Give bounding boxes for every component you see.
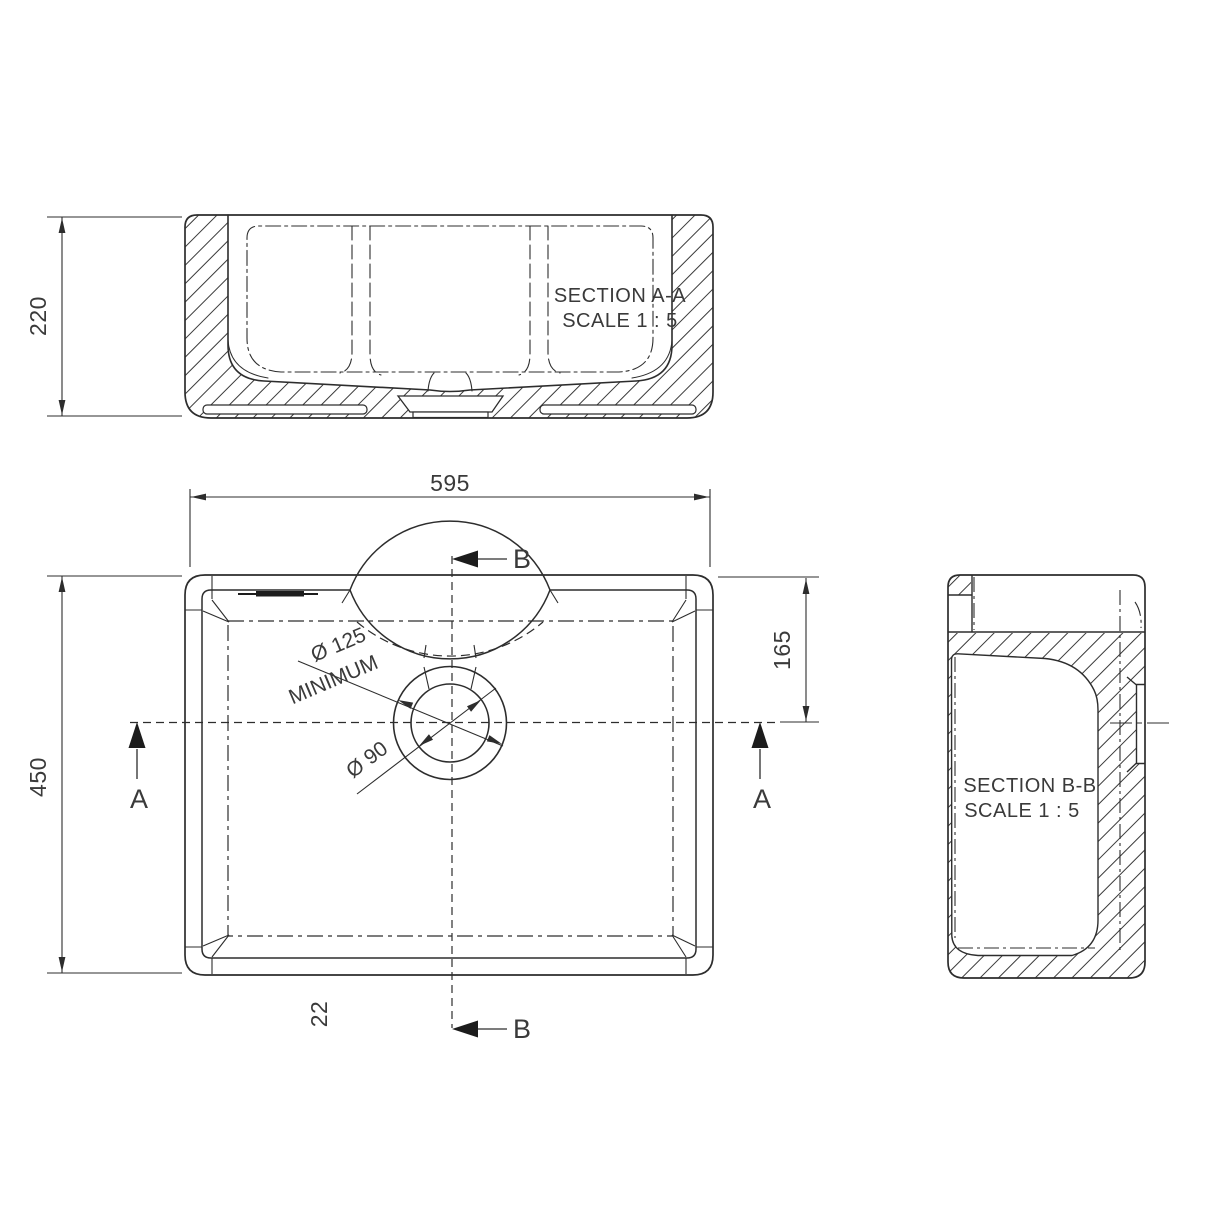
cut-arrow-a-left: A	[129, 722, 149, 814]
drain-boss	[398, 396, 503, 412]
cut-arrow-b-top: B	[452, 544, 531, 574]
dim-waste-hole-label: Ø 90	[342, 737, 392, 783]
dim-220: 220	[25, 217, 182, 416]
drain-boss-base	[413, 412, 488, 418]
section-aa-scale: SCALE 1 : 5	[562, 310, 678, 332]
drawing-canvas: SECTION A-A SCALE 1 : 5 220	[0, 0, 1214, 1214]
dim-165-label: 165	[769, 630, 795, 670]
cut-arrows: A A B B	[129, 544, 772, 1044]
cut-arrow-b-bottom: B	[452, 1014, 531, 1044]
plan-ledge-arc-hidden	[357, 622, 543, 656]
rim-arc-mask	[352, 588, 548, 592]
cut-label-a-right: A	[753, 784, 771, 814]
bb-rim-white	[971, 574, 1147, 633]
section-bb-scale: SCALE 1 : 5	[964, 800, 1080, 822]
plan-outline	[185, 575, 713, 975]
cut-label-b-bottom: B	[513, 1014, 531, 1044]
section-aa-title: SECTION A-A	[554, 285, 686, 307]
plan-ledge-arc	[350, 590, 550, 659]
bb-apron-white	[947, 595, 972, 633]
dim-595: 595	[190, 470, 710, 567]
overflow-mark	[238, 591, 318, 597]
dim-waste: Ø 125 MINIMUM Ø 90	[285, 623, 503, 794]
dim-450: 450	[25, 576, 182, 973]
dim-220-label: 220	[25, 296, 51, 336]
section-bb-title: SECTION B-B	[963, 775, 1096, 797]
dim-waste-min-note: MINIMUM	[285, 651, 381, 709]
plan-view: Ø 125 MINIMUM Ø 90 22	[130, 521, 776, 1028]
section-aa-view: SECTION A-A SCALE 1 : 5	[185, 215, 713, 418]
hidden-ledge-lines	[340, 226, 560, 375]
cut-label-b-top: B	[513, 544, 531, 574]
dim-595-label: 595	[430, 470, 470, 496]
foot-strip-left	[203, 405, 367, 414]
plan-inner-rim	[202, 521, 696, 958]
dim-165: 165	[718, 577, 819, 722]
cut-arrow-a-right: A	[752, 722, 772, 814]
plan-corner-details	[185, 576, 713, 974]
technical-drawing-page: SECTION A-A SCALE 1 : 5 220	[0, 0, 1214, 1214]
dim-450-label: 450	[25, 757, 51, 797]
foot-strip-right	[540, 405, 696, 414]
dim-22-label: 22	[306, 1001, 332, 1028]
drain-recess-curves	[428, 373, 472, 391]
plan-hidden-bottom	[228, 621, 673, 936]
cut-label-a-left: A	[130, 784, 148, 814]
section-bb-view: SECTION B-B SCALE 1 : 5	[947, 574, 1170, 978]
bowl-fillets	[228, 340, 672, 378]
